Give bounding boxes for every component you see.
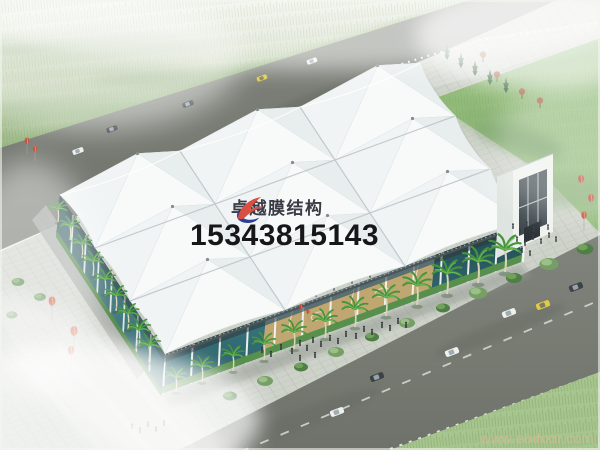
site-url-text: www.ebdoor.com (480, 430, 594, 446)
rendering-photo: 卓越膜结构 15343815143 www.ebdoor.com (0, 0, 600, 450)
center-watermark: 卓越膜结构 (231, 194, 324, 219)
phone-number-text: 15343815143 (190, 219, 379, 253)
